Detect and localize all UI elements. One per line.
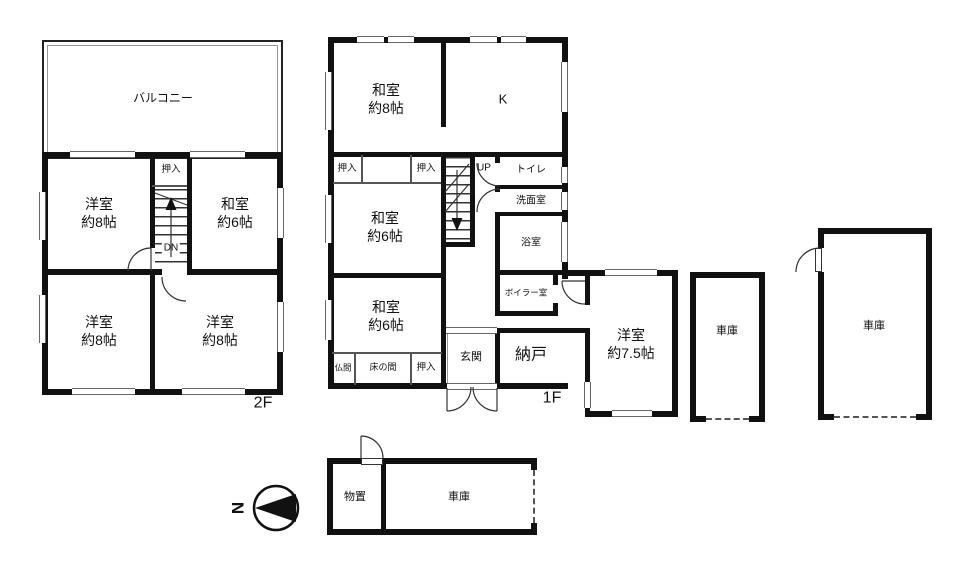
room-label-f2-japanese-ne: 和室約6帖 <box>217 195 253 231</box>
wall <box>562 270 585 276</box>
door-arc <box>477 189 500 212</box>
wall <box>327 529 537 535</box>
alcove-partition <box>354 352 356 385</box>
room-label-western75: 洋室約7.5帖 <box>607 326 654 362</box>
room-label-washroom: 洗面室 <box>516 195 546 208</box>
room-label-kitchen: K <box>499 92 508 109</box>
wall <box>495 212 500 316</box>
window <box>70 151 135 158</box>
wall <box>585 270 590 305</box>
window <box>182 388 245 395</box>
room-label-garage-a: 車庫 <box>716 324 738 338</box>
closet-c-label: 押入 <box>416 362 435 374</box>
window <box>561 192 568 210</box>
window <box>501 36 526 43</box>
window <box>561 62 568 112</box>
entrance-threshold <box>447 383 497 390</box>
floor-plan: バルコニー 押入 DN 洋室約8帖 和室約6帖 洋室約8帖 洋室約8帖 2F <box>0 0 968 574</box>
door-leaf <box>361 458 383 465</box>
wall <box>42 269 162 275</box>
wall <box>383 458 537 464</box>
room-label-f2-western-se: 洋室約8帖 <box>202 313 238 349</box>
wall <box>531 523 537 535</box>
wall <box>328 152 568 157</box>
wall <box>328 273 446 278</box>
wall <box>818 414 834 420</box>
wall <box>187 269 283 275</box>
closet-a-label: 押入 <box>337 163 356 175</box>
room-label-f2-western-sw: 洋室約8帖 <box>81 313 117 349</box>
door-arc <box>562 281 585 304</box>
wall <box>327 458 333 535</box>
window <box>357 36 384 43</box>
wall <box>531 458 537 470</box>
wall <box>441 37 446 127</box>
wall <box>150 271 155 389</box>
wall <box>495 185 568 189</box>
compass-needle <box>255 494 296 522</box>
room-label-balcony: バルコニー <box>133 91 193 107</box>
wall <box>672 270 678 417</box>
closet-b-label: 押入 <box>416 163 435 175</box>
wall <box>690 416 706 422</box>
room-label-boiler: ボイラー室 <box>505 287 548 298</box>
wall <box>749 416 765 422</box>
room-label-bathroom: 浴室 <box>521 237 541 250</box>
room-label-f1-japanese6-mid: 和室約6帖 <box>367 209 403 245</box>
window <box>470 36 497 43</box>
wall <box>818 228 932 234</box>
wall <box>553 303 558 316</box>
alcove-partition <box>410 352 412 385</box>
tokonoma-label: 床の間 <box>369 362 396 374</box>
garage-opening <box>834 416 916 418</box>
window <box>39 192 46 240</box>
window <box>561 222 568 262</box>
closet-label-2f: 押入 <box>161 164 180 176</box>
garage-opening <box>706 418 749 420</box>
door-arc <box>162 277 186 301</box>
wall <box>187 152 192 269</box>
wall <box>328 383 447 389</box>
window <box>605 269 657 276</box>
room-label-f1-japanese6-low: 和室約6帖 <box>368 298 404 334</box>
window <box>39 295 46 343</box>
room-label-f1-japanese8: 和室約8帖 <box>368 81 404 117</box>
wall <box>495 328 590 333</box>
wall <box>759 272 765 422</box>
butsuma-label: 仏間 <box>334 362 351 373</box>
wall <box>150 152 155 248</box>
door-leaf <box>815 248 822 272</box>
window <box>388 36 414 43</box>
floor-label-2f: 2F <box>254 394 273 415</box>
window <box>584 382 591 408</box>
wall <box>818 272 824 420</box>
wall <box>916 414 932 420</box>
wall <box>495 328 500 388</box>
entrance-slider <box>446 327 497 334</box>
window <box>325 72 332 130</box>
floor-label-1f: 1F <box>543 389 562 410</box>
door-arc <box>447 387 471 411</box>
window <box>325 300 332 340</box>
stairs-1f <box>446 157 470 242</box>
window <box>190 151 245 158</box>
stairs-dn-label: DN <box>162 242 180 255</box>
room-label-storeroom: 納戸 <box>515 346 547 367</box>
wall <box>690 272 765 278</box>
room-label-garage-b: 車庫 <box>863 319 885 333</box>
window <box>277 302 284 352</box>
wall <box>926 228 932 420</box>
room-label-toilet: トイレ <box>516 164 546 177</box>
wall <box>495 152 500 163</box>
compass-north-label: N <box>226 502 248 514</box>
door-arc <box>128 248 151 271</box>
window <box>72 388 135 395</box>
room-label-shed: 物置 <box>344 490 366 504</box>
compass-circle <box>254 486 298 530</box>
door-arc <box>361 436 383 458</box>
alcove-partition <box>332 352 442 354</box>
window <box>561 167 568 183</box>
wall <box>381 458 386 535</box>
door-arc <box>473 387 497 411</box>
closet-partition <box>410 155 412 184</box>
wall <box>495 212 568 216</box>
room-label-f2-western-nw: 洋室約8帖 <box>81 195 117 231</box>
compass <box>254 486 298 530</box>
wall <box>495 311 558 316</box>
wall <box>818 228 824 248</box>
wall <box>441 242 475 247</box>
stairs-up-label: UP <box>475 162 493 175</box>
room-label-entrance: 玄関 <box>460 350 482 364</box>
window <box>277 188 284 238</box>
room-label-annex-garage: 車庫 <box>448 490 470 504</box>
window <box>325 195 332 243</box>
window <box>612 410 652 417</box>
closet-partition <box>152 185 187 187</box>
wall <box>553 275 558 285</box>
stairs-2f <box>155 189 187 267</box>
closet-partition <box>333 182 441 184</box>
wall <box>690 272 696 422</box>
closet-partition <box>361 155 363 184</box>
garage-opening <box>533 470 535 523</box>
